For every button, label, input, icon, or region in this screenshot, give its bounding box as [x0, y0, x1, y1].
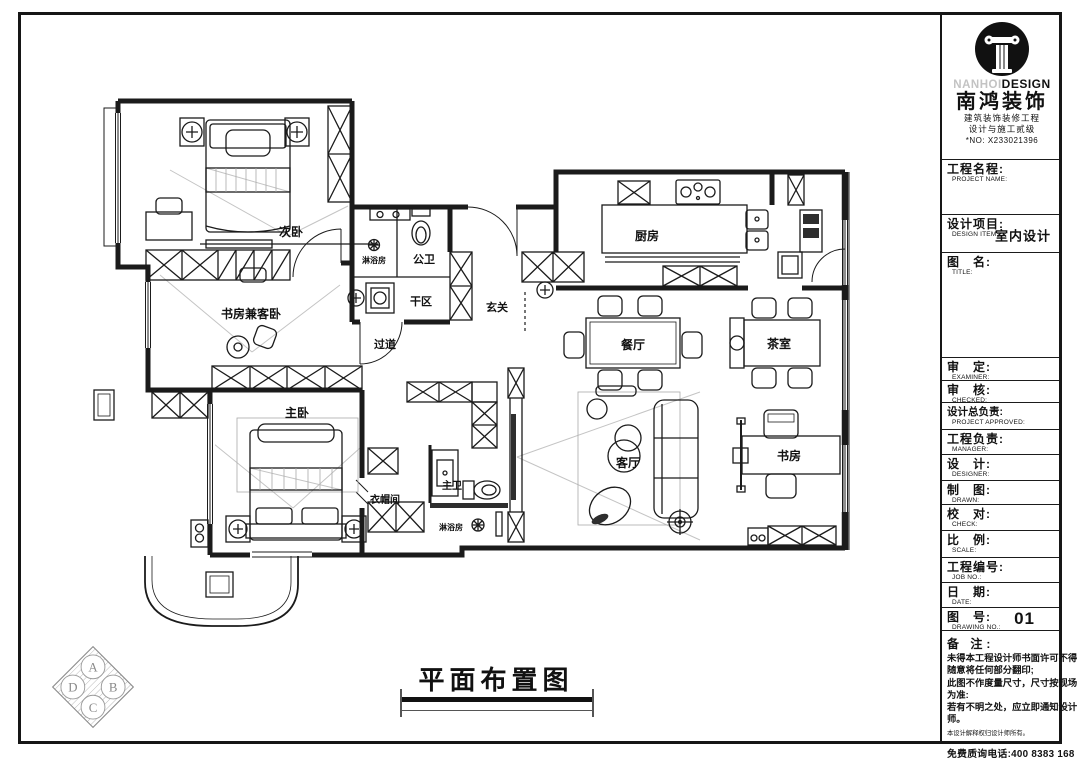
field-job-no: 工程编号: JOB NO.: [942, 558, 1059, 583]
notes-label: 备 注: [947, 635, 1057, 652]
entry-door-arc [468, 207, 517, 256]
field-label-en: DESIGNER: [947, 471, 1057, 479]
field-label-cn: 审 核: [947, 383, 1057, 397]
field-label-en: JOB NO.: [947, 574, 1057, 582]
room-label-master-bath: 主卫 [442, 479, 462, 492]
brand-name: NANHOIDESIGN [947, 78, 1057, 91]
walls [118, 101, 845, 556]
field-label-en: DRAWN: [947, 497, 1057, 505]
room-label-hallway: 过道 [374, 337, 396, 351]
field-label-cn: 工程负责: [947, 432, 1057, 446]
field-label-cn: 工程名程: [947, 162, 1057, 176]
zone-compass: A B C D [49, 643, 137, 731]
field-label-cn: 比 例: [947, 533, 1057, 547]
field-label-cn: 设 计: [947, 457, 1057, 471]
shower-divider [430, 503, 508, 508]
note-line: 为准: [947, 689, 1057, 701]
note-line: 随意将任何部分翻印; [947, 664, 1057, 676]
room-label-bedroom2: 次卧 [279, 224, 303, 239]
field-label-cn: 校 对: [947, 507, 1057, 521]
cert-number: *NO: X233021396 [947, 136, 1057, 145]
note-line: 若有不明之处，应立即通知设计 [947, 701, 1057, 713]
kitchen-balcony-door-arc [812, 249, 845, 282]
title-block: NANHOIDESIGN 南鸿装饰 建筑装饰装修工程 设计与施工贰级 *NO: … [940, 15, 1059, 741]
furniture-master [226, 418, 366, 542]
field-drawing-title: 图 名: TITLE: [942, 253, 1059, 358]
field-drawing-no: 图 号: DRAWING NO.: 01 [942, 608, 1059, 631]
field-value: 室内设计 [995, 225, 1051, 244]
drawing-number-value: 01 [1014, 609, 1035, 629]
field-check: 校 对: CHECK: [942, 505, 1059, 531]
field-project-approved: 设计总负责: PROJECT APPROVED: [942, 403, 1059, 430]
column-logo-icon [974, 21, 1030, 77]
room-label-public-bath: 公卫 [413, 253, 435, 266]
field-label-cn: 图 名: [947, 255, 1057, 269]
field-label-cn: 图 号: [947, 610, 1057, 624]
note-line: 未得本工程设计师书面许可不得 [947, 652, 1057, 664]
room-label-shower1: 淋浴房 [362, 255, 386, 265]
title-underline-thick [402, 697, 593, 702]
room-label-living: 客厅 [615, 455, 640, 470]
field-label-cn: 工程编号: [947, 560, 1057, 574]
title-underline-thin [402, 710, 593, 711]
brand-name-bold: DESIGN [1002, 77, 1051, 91]
field-drawn: 制 图: DRAWN: [942, 481, 1059, 505]
field-label-en: CHECK: [947, 521, 1057, 529]
zone-letter-b: B [109, 681, 118, 695]
field-manager: 工程负责: MANAGER: [942, 430, 1059, 455]
company-name: 南鸿装饰 [947, 91, 1057, 113]
field-label-en: MANAGER: [947, 446, 1057, 454]
drawing-title: 平面布置图 [380, 660, 612, 697]
room-label-study: 书房 [777, 448, 801, 463]
brand-name-light: NANHOI [953, 79, 1001, 91]
tv-panel [511, 414, 516, 500]
service-hotline: 免费质询电话:400 8383 168 [947, 746, 1057, 760]
room-label-dining: 餐厅 [621, 337, 645, 352]
zone-letter-a: A [88, 660, 98, 674]
cert-line1: 建筑装饰装修工程 [947, 113, 1057, 124]
field-project-name: 工程名程: PROJECT NAME: [942, 160, 1059, 215]
zone-letter-c: C [89, 701, 98, 715]
room-label-guest-study: 书房兼客卧 [221, 306, 281, 321]
field-examiner: 审 定: EXAMINER: [942, 358, 1059, 381]
floor-plan: 次卧 书房兼客卧 淋浴房 公卫 干区 玄关 过道 厨房 餐厅 茶室 客厅 书房 … [0, 0, 1080, 756]
room-label-tea-room: 茶室 [766, 336, 791, 351]
room-label-shower2: 淋浴房 [439, 522, 463, 532]
field-label-cn: 审 定: [947, 360, 1057, 374]
room-label-entry: 玄关 [486, 300, 508, 314]
field-label-en: PROJECT APPROVED: [947, 419, 1057, 427]
title-tick-right [592, 689, 594, 717]
furniture-entry [537, 282, 553, 298]
notes-section: 备 注: 未得本工程设计师书面许可不得 随意将任何部分翻印; 此图不作度量尺寸，… [942, 631, 1059, 760]
note-line: 此图不作度量尺寸，尺寸按现场 [947, 677, 1057, 689]
furniture-study [733, 410, 840, 545]
room-label-closet: 衣帽间 [370, 493, 400, 506]
field-label-en: SCALE: [947, 547, 1057, 555]
note-line: 师。 [947, 713, 1057, 725]
field-date: 日 期: DATE: [942, 583, 1059, 608]
field-design-item: 设计项目: DESIGN ITEM: 室内设计 [942, 215, 1059, 253]
room-label-kitchen: 厨房 [635, 228, 659, 243]
field-scale: 比 例: SCALE: [942, 531, 1059, 558]
cert-line2: 设计与施工贰级 [947, 124, 1057, 135]
zone-letter-d: D [68, 681, 77, 695]
field-designer: 设 计: DESIGNER: [942, 455, 1059, 481]
field-label-cn: 制 图: [947, 483, 1057, 497]
room-label-master: 主卧 [285, 405, 309, 420]
room-label-dry-area: 干区 [410, 295, 432, 308]
note-disclaimer: 本设计解释权归设计师所有。 [947, 728, 1057, 737]
field-checked: 审 核: CHECKED: [942, 381, 1059, 403]
company-logo-section: NANHOIDESIGN 南鸿装饰 建筑装饰装修工程 设计与施工贰级 *NO: … [942, 15, 1059, 160]
field-label-cn: 日 期: [947, 585, 1057, 599]
title-tick-left [400, 689, 402, 717]
field-label-en: TITLE: [947, 269, 1057, 277]
field-label-en: DATE: [947, 599, 1057, 607]
field-label-cn: 设计总负责: [947, 405, 1057, 419]
field-label-en: PROJECT NAME: [947, 176, 1057, 184]
